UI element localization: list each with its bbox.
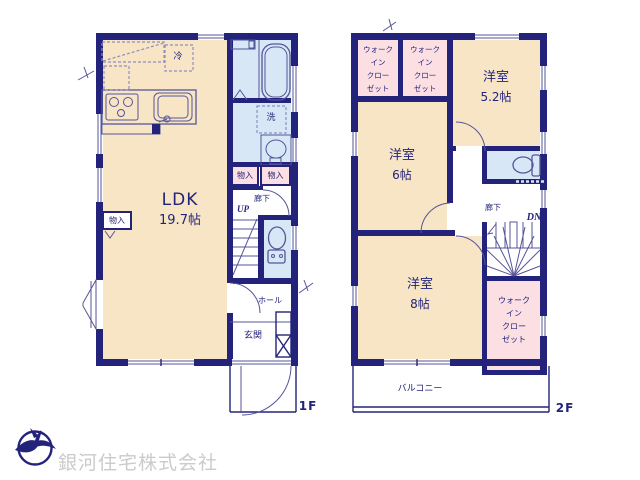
stairs-down-2f [487, 222, 540, 276]
company-name: 銀河住宅株式会社 [58, 448, 218, 475]
floorplan-page: 冷 洗 物入 物入 物入 LDK 19.7帖 廊下 UP ホール 玄関 1F ウ… [0, 0, 640, 480]
hall-label: ホール [248, 296, 292, 305]
corridor-label-1f: 廊下 [246, 194, 278, 203]
floor-label-2f: 2F [550, 402, 580, 416]
company-logo-icon [12, 424, 58, 470]
floor-label-1f: 1F [293, 400, 323, 414]
storage-box-b: 物入 [260, 165, 291, 186]
room-8-size: 8帖 [357, 298, 483, 312]
porch-outline [230, 366, 296, 415]
ldk-room-size: 19.7帖 [128, 214, 232, 229]
bay-window [83, 280, 103, 329]
entrance-label: 玄関 [234, 331, 272, 341]
stairs-up-label: UP [230, 204, 256, 214]
room-52-size: 5.2帖 [452, 91, 540, 105]
wic1-label: ウォーク イン クロー ゼット [357, 43, 399, 95]
storage-box-a: 物入 [231, 165, 259, 186]
room-8-name: 洋室 [357, 278, 483, 293]
room-52-name: 洋室 [452, 71, 540, 86]
stairs-up-1f [233, 219, 258, 275]
room-6-size: 6帖 [357, 169, 447, 183]
wic3-label: ウォーク イン クロー ゼット [488, 294, 540, 346]
fridge-label: 冷 [163, 52, 193, 62]
stairs-down-label: DN [519, 212, 549, 224]
vent-marks-2f [383, 19, 396, 31]
corridor-label-2f: 廊下 [477, 203, 509, 212]
wic2-label: ウォーク イン クロー ゼット [402, 43, 448, 95]
room-6-name: 洋室 [357, 149, 447, 164]
balcony-label: バルコニー [388, 384, 452, 394]
shoe-cabinet-icon [276, 312, 291, 357]
washer-label: 洗 [256, 113, 286, 123]
ldk-room-name: LDK [128, 191, 232, 211]
